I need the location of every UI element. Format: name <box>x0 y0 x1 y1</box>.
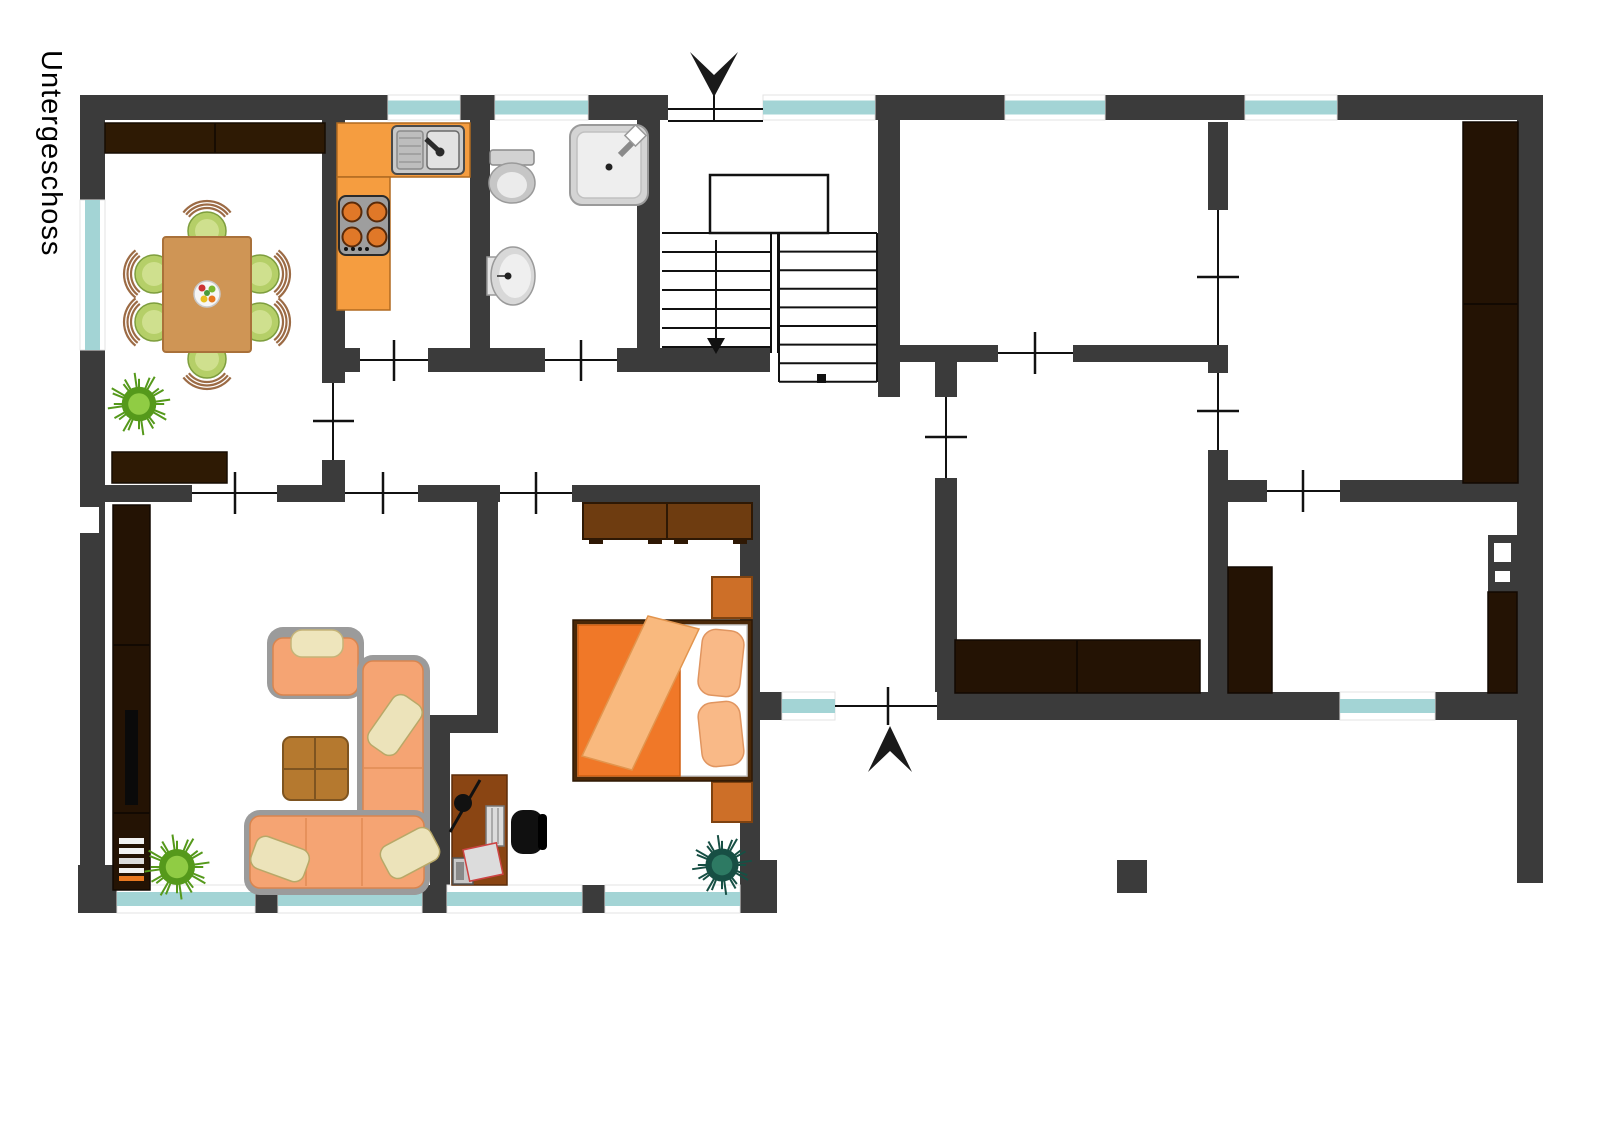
wall-south-hall-1 <box>760 692 782 720</box>
living-plant-center <box>166 856 189 879</box>
stove-knob-1 <box>344 247 348 251</box>
wardrobe-foot-4 <box>733 539 747 544</box>
wall-bedroom-north-1 <box>418 485 500 502</box>
wall-top-6 <box>1337 95 1543 120</box>
room4-cabinet-left <box>1228 567 1272 693</box>
desk-keyboard <box>486 806 504 846</box>
room4-cabinet-right <box>1488 592 1517 693</box>
centerpiece-flower-5 <box>204 290 210 296</box>
burner-3 <box>343 228 362 247</box>
wall-top-5 <box>1105 95 1245 120</box>
wall-bottom-pier-3 <box>582 885 605 913</box>
chimney-hole-2 <box>1495 571 1510 582</box>
window-top-1-glass <box>388 101 460 115</box>
wall-bedroom-west-lower <box>430 733 450 885</box>
window-bottom-4-glass <box>605 892 740 906</box>
tv-screen <box>125 710 138 805</box>
stove-knob-2 <box>351 247 355 251</box>
wall-corner-sw <box>78 865 117 913</box>
bedroom-plant-center <box>712 855 733 876</box>
window-left-glass <box>85 200 100 350</box>
wall-left-upper <box>80 95 105 200</box>
office-chair-back <box>538 814 547 850</box>
centerpiece-flower-1 <box>199 285 206 292</box>
wall-top-2 <box>460 95 495 120</box>
wall-notch-left <box>80 507 99 533</box>
stereo-stripe-3 <box>119 858 144 864</box>
nightstand-1 <box>712 577 752 618</box>
centerpiece-flower-3 <box>201 296 208 303</box>
wall-top-3 <box>588 95 668 120</box>
window-hall-south-glass <box>782 699 835 713</box>
window-bottom-1-glass <box>117 892 255 906</box>
window-bottom-3-glass <box>447 892 582 906</box>
basin-tap <box>505 273 512 280</box>
window-top-2-glass <box>495 101 588 115</box>
wall-bedroom-north-2 <box>572 485 760 502</box>
wall-hall-room3 <box>935 478 957 692</box>
wall-living-north-2 <box>277 485 345 502</box>
wall-pillar <box>1117 860 1147 893</box>
wall-right <box>1517 95 1543 883</box>
wardrobe-foot-1 <box>589 539 603 544</box>
burner-4 <box>368 228 387 247</box>
stove-knob-4 <box>365 247 369 251</box>
wall-south-right <box>1435 692 1517 720</box>
phone-handset <box>456 862 464 880</box>
desk-lamp <box>454 794 472 812</box>
wardrobe-foot-3 <box>674 539 688 544</box>
wall-bedroom-west-jog <box>430 715 498 733</box>
entrance-arrow-bottom <box>868 726 912 772</box>
living-wall-unit <box>113 505 150 890</box>
dining-plant-center <box>128 393 150 415</box>
wall-living-north-1 <box>105 485 192 502</box>
floorplan: Untergeschoss <box>0 0 1600 1132</box>
centerpiece-flower-4 <box>209 296 216 303</box>
desk-paper <box>463 843 503 881</box>
stereo-stripe-1 <box>119 838 144 844</box>
wall-kitchen-bath <box>470 120 490 372</box>
window-top-5-glass <box>1245 101 1337 115</box>
window-top-4-glass <box>1005 101 1105 115</box>
wall-bath-south <box>617 348 770 372</box>
chimney-hole-1 <box>1494 543 1511 562</box>
bed-pillow-1 <box>697 628 746 698</box>
wall-corridor-north-2 <box>1073 345 1228 362</box>
wardrobe-foot-2 <box>648 539 662 544</box>
staircase-dot <box>817 374 826 383</box>
wall-corridor-north-1 <box>893 345 998 362</box>
window-top-3-glass <box>763 101 875 115</box>
armchair-cushion <box>291 630 343 657</box>
stereo-stripe-5 <box>119 876 144 881</box>
wall-room1-room2 <box>1208 122 1228 210</box>
sink-faucet <box>436 148 445 157</box>
wall-room4-north-1 <box>1218 480 1267 502</box>
wall-kitchen-south-2 <box>428 348 545 372</box>
bed-pillow-2 <box>697 700 745 768</box>
stove-knob-3 <box>358 247 362 251</box>
dining-sideboard <box>112 452 227 483</box>
stereo-stripe-4 <box>119 868 144 873</box>
stereo-stripe-2 <box>119 848 144 854</box>
wall-top-4 <box>875 95 1005 120</box>
shower-drain <box>606 164 613 171</box>
wall-south-hall-2 <box>937 692 1340 720</box>
staircase-void <box>710 175 828 233</box>
wall-kitchen-south-1 <box>322 348 360 372</box>
wall-bedroom-west-upper <box>477 502 498 733</box>
wall-left-lower <box>80 350 105 885</box>
burner-1 <box>343 203 362 222</box>
entrance-arrow-top <box>690 52 738 97</box>
toilet-bowl-inner <box>497 172 527 198</box>
burner-2 <box>368 203 387 222</box>
room2-cabinet <box>1463 122 1518 483</box>
sink-drainboard <box>397 131 423 169</box>
nightstand-2 <box>712 782 752 822</box>
wall-top-1 <box>80 95 388 120</box>
window-room4-south-glass <box>1340 699 1435 713</box>
floorplan-canvas <box>0 0 1600 1132</box>
